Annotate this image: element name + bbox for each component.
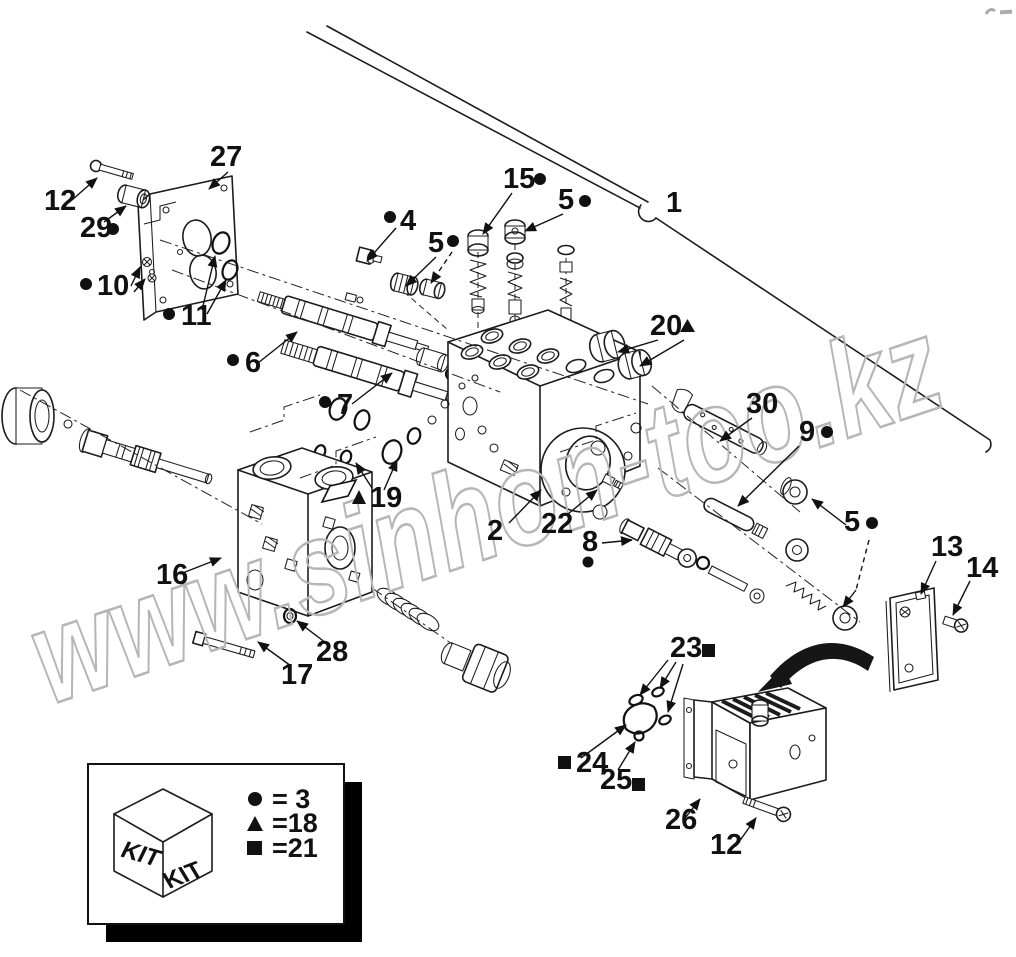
svg-text:9: 9 [799,416,815,448]
svg-text:5: 5 [844,506,860,538]
svg-text:10: 10 [97,270,129,302]
svg-text:15: 15 [503,163,535,195]
screw-part14 [942,614,969,634]
callout-5-right: 5 [812,499,878,607]
callout-26: 26 [665,799,700,836]
kit-dot-icon [319,396,331,408]
kit-legend: KIT KIT = 3 =18 =21 [88,764,362,942]
svg-text:4: 4 [400,205,416,237]
kit-dot-icon [447,235,459,247]
svg-text:25: 25 [600,764,632,796]
kit-square-icon [702,644,715,657]
svg-text:7: 7 [337,389,353,421]
svg-text:17: 17 [281,659,313,691]
kit-dot-icon [821,426,833,438]
callout-29: 29 [80,206,126,244]
kit-dot-icon [107,223,119,235]
svg-text:28: 28 [316,636,348,668]
svg-text:2: 2 [487,515,503,547]
parts-diagram-page: www.sinhon-too.kz 12 29 27 10 11 [0,0,1016,957]
svg-text:27: 27 [210,141,242,173]
parts-diagram-canvas: www.sinhon-too.kz 12 29 27 10 11 [0,0,1016,957]
bolt-part12-bottom [742,793,793,823]
plate-part13 [886,588,938,692]
svg-text:5: 5 [558,184,574,216]
kit-dot-icon [227,354,239,366]
hex-adapter [435,632,516,696]
callout-23: 23 [640,632,715,712]
scan-artifact [986,10,1012,15]
kit-dot-icon [579,195,591,207]
svg-text:12: 12 [44,185,76,217]
callout-1: 1 [666,187,682,219]
svg-text:16: 16 [156,559,188,591]
svg-text:=21: =21 [272,833,318,863]
callout-13: 13 [921,531,963,594]
svg-text:20: 20 [650,310,682,342]
svg-text:23: 23 [670,632,702,664]
callout-12-bottom: 12 [710,818,756,861]
kit-dot-icon [384,211,396,223]
kit-dot-icon [163,308,175,320]
solenoid-block-part26 [684,688,826,800]
end-cap-part27 [138,176,238,320]
svg-text:13: 13 [931,531,963,563]
svg-text:1: 1 [666,187,682,219]
kit-dot-icon [80,278,92,290]
svg-text:5: 5 [428,227,444,259]
gasket-orings-cluster [624,686,672,741]
kit-dot-icon [866,517,878,529]
kit-square-icon [558,756,571,769]
kit-dot-icon [534,173,546,185]
svg-text:11: 11 [181,300,212,332]
svg-text:14: 14 [966,552,998,584]
kit-square-icon [247,841,262,855]
kit-dot-icon [248,792,262,806]
kit-square-icon [632,778,645,791]
svg-text:8: 8 [582,526,598,558]
callout-10: 10 [80,267,145,302]
callout-4: 4 [367,205,416,261]
svg-text:30: 30 [746,388,778,420]
swoosh-arrow [758,643,874,692]
kit-dot-icon [583,557,594,568]
